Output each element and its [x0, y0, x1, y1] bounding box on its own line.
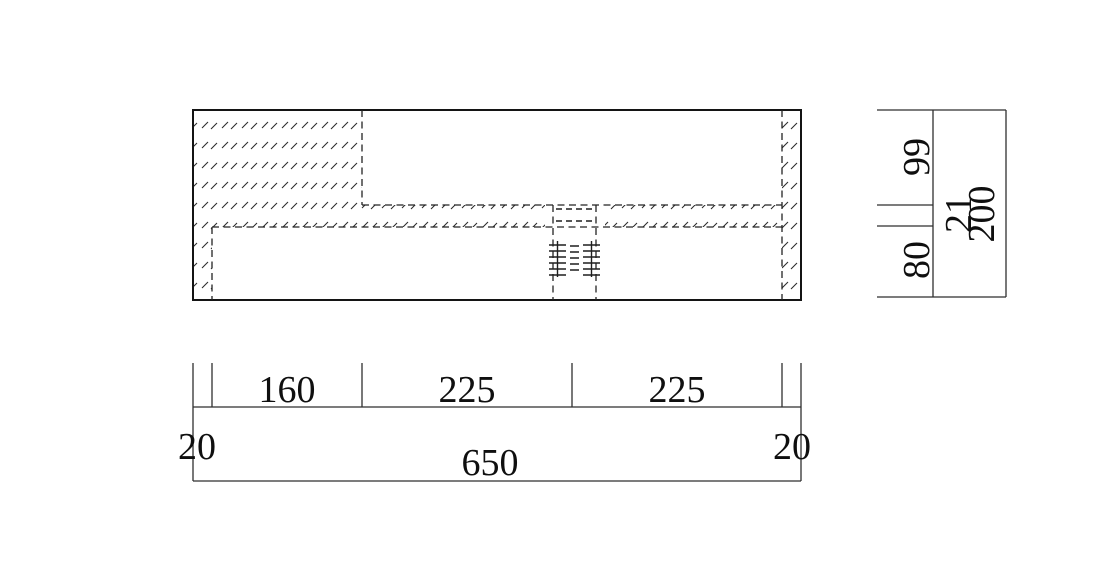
dim-label-99: 99 — [896, 138, 938, 176]
dim-label-80: 80 — [896, 241, 938, 279]
drawing-sheet: 20 160 225 225 20 650 99 21 200 80 — [0, 0, 1112, 568]
drawing-canvas: 20 160 225 225 20 650 99 21 200 80 — [0, 0, 1112, 568]
section-view — [193, 110, 801, 300]
bottom-dimensions: 20 160 225 225 20 650 — [178, 363, 811, 484]
hatch-top-left-block — [212, 110, 362, 227]
hatch-flange-left — [362, 205, 545, 227]
dim-label-20-left: 20 — [178, 426, 216, 468]
hole-strip-dashes — [556, 209, 596, 221]
hatch-flange-right — [605, 205, 782, 227]
dim-label-200: 200 — [961, 186, 1003, 243]
dim-label-225-left: 225 — [439, 369, 496, 411]
hatch-left-wall — [193, 110, 212, 300]
dim-label-225-right: 225 — [649, 369, 706, 411]
dim-label-20-right: 20 — [773, 426, 811, 468]
dim-label-160: 160 — [259, 369, 316, 411]
thread-ticks-center — [570, 246, 579, 270]
threaded-hole-detail — [549, 205, 600, 300]
hatch-right-wall — [782, 110, 801, 300]
right-dimensions: 99 21 200 80 — [877, 110, 1006, 297]
dim-label-650: 650 — [462, 442, 519, 484]
